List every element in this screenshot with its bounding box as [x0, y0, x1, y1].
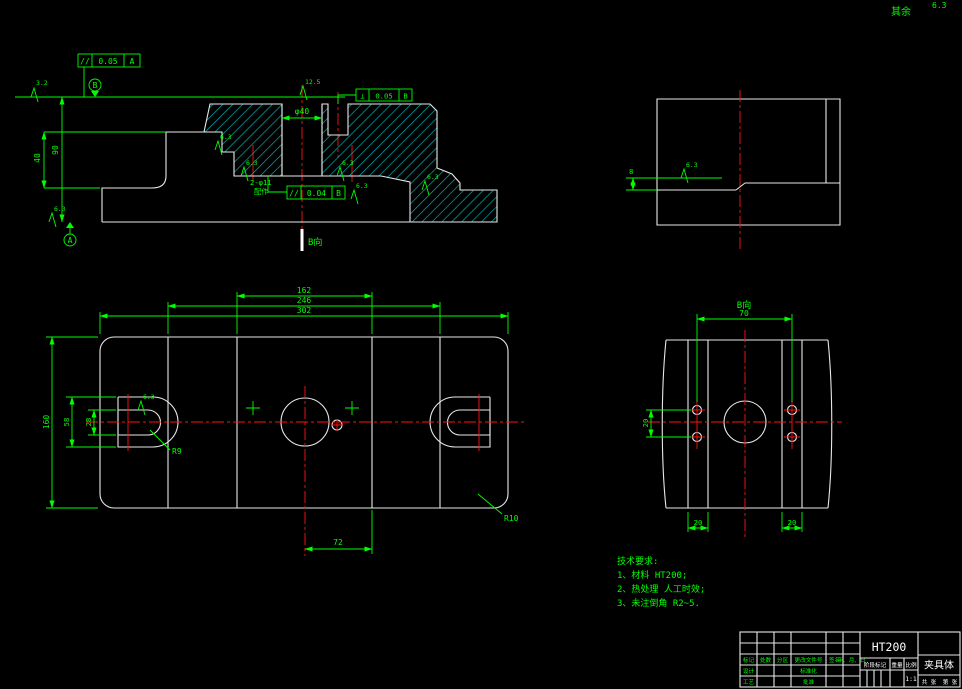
svg-text:6.3: 6.3 [246, 159, 258, 167]
svg-text:302: 302 [297, 306, 312, 315]
front-section-view: B A // 0.05 A ⊥ 0.05 B [15, 54, 497, 251]
side-outline [657, 99, 840, 225]
svg-text:A: A [68, 236, 73, 245]
side-extension [626, 178, 722, 190]
corner-radius-label: R10 [504, 514, 519, 523]
svg-text:0.04: 0.04 [307, 189, 326, 198]
slot-radius-label: R9 [172, 447, 182, 456]
b-direction-view: B向 70 20 20 20 [641, 299, 842, 537]
tech-item: 1、材料 HT200; [617, 569, 687, 581]
standardize-label: 标准化 [800, 667, 817, 675]
tech-item: 3、未注倒角 R2~5. [617, 597, 700, 609]
dim-step: 40 [33, 153, 42, 163]
svg-text:58: 58 [62, 418, 71, 427]
svg-text:6.3: 6.3 [342, 159, 354, 167]
right-slot-inner [448, 410, 491, 435]
technical-requirements: 技术要求: 1、材料 HT200; 2、热处理 人工时效; 3、未注倒角 R2~… [617, 555, 705, 609]
surplus-value: 6.3 [932, 1, 947, 10]
fcf-perp-b: ⊥ 0.05 B [356, 89, 412, 101]
sheet-no-label: 第 张 [943, 678, 958, 686]
stage-label: 阶段标记 [864, 661, 887, 669]
plan-centerlines [86, 386, 524, 556]
svg-text:0.05: 0.05 [375, 92, 392, 101]
sheets-label: 共 张 [922, 678, 937, 686]
left-slot-outer [118, 397, 178, 447]
svg-text:标记: 标记 [743, 656, 755, 664]
svg-text:28: 28 [84, 418, 93, 427]
svg-text:A: A [130, 57, 135, 66]
svg-text:6.3: 6.3 [356, 182, 368, 190]
dim-height: 90 [51, 145, 60, 155]
left-slot-inner [118, 410, 161, 435]
svg-text:70: 70 [739, 309, 749, 318]
scale-label: 比例 [905, 661, 917, 669]
svg-text:更改文件号: 更改文件号 [795, 656, 823, 664]
svg-text:20: 20 [694, 518, 703, 527]
svg-text:160: 160 [42, 415, 51, 430]
section-direction-marker: B向 [302, 229, 322, 251]
svg-text:6.3: 6.3 [686, 161, 698, 169]
approve-label: 批准 [803, 678, 815, 686]
bview-centerlines [648, 330, 842, 537]
plan-panel-lines [168, 337, 440, 508]
svg-text:162: 162 [297, 286, 312, 295]
svg-text:处数: 处数 [760, 656, 772, 664]
plan-dimensions: 162 246 302 160 58 28 72 R9 R10 6.3 [42, 286, 519, 554]
side-inner-lines [657, 99, 840, 190]
svg-text:⊥: ⊥ [360, 92, 365, 101]
tech-title: 技术要求: [617, 555, 658, 567]
svg-text:B: B [93, 81, 98, 90]
side-dim-step: 8 [629, 167, 633, 176]
svg-text:20: 20 [641, 419, 650, 428]
svg-text:20: 20 [788, 518, 797, 527]
svg-text:6.3: 6.3 [220, 133, 232, 141]
design-label: 设计 [743, 667, 755, 675]
process-label: 工艺 [743, 679, 755, 686]
left-wing-section [204, 104, 282, 176]
dim-bore: φ40 [295, 107, 310, 116]
svg-text:6.3: 6.3 [54, 205, 66, 213]
material-value: HT200 [872, 640, 907, 654]
svg-text:3.2: 3.2 [36, 79, 48, 87]
part-name: 夹具体 [924, 659, 954, 672]
svg-text:72: 72 [333, 538, 343, 547]
surplus-roughness-note: 其余 6.3 [891, 1, 962, 24]
svg-text:分区: 分区 [777, 656, 789, 664]
svg-text://: // [289, 189, 299, 198]
plan-outline [100, 337, 508, 508]
holes-label: 2-φ11 [250, 178, 272, 187]
fcf-parallel-a: // 0.05 A [78, 54, 140, 67]
plan-view: 162 246 302 160 58 28 72 R9 R10 6.3 [42, 286, 524, 556]
title-block: 标记 处数 分区 更改文件号 签名 年、月、日 设计 标准化 工艺 批准 HT2… [740, 632, 960, 687]
hole-center-marks [246, 401, 359, 415]
b-direction-label: B向 [308, 236, 322, 248]
bview-top-bottom [666, 340, 828, 508]
svg-text:12.5: 12.5 [305, 78, 321, 86]
side-view: 8 6.3 [626, 90, 840, 252]
surplus-label: 其余 [891, 5, 911, 18]
svg-text://: // [80, 57, 90, 66]
drawing-svg: 其余 6.3 B [0, 0, 962, 689]
svg-text:6.3: 6.3 [427, 173, 439, 181]
datum-b: B [89, 79, 101, 97]
plan-roughness-icon [138, 401, 145, 415]
fcf2-leader [338, 95, 356, 104]
svg-text:B: B [403, 92, 407, 101]
svg-text:0.05: 0.05 [98, 57, 117, 66]
revision-row-labels: 标记 处数 分区 更改文件号 签名 年、月、日 设计 标准化 工艺 批准 [743, 656, 866, 686]
tech-item: 2、热处理 人工时效; [617, 583, 705, 595]
scale-value: 1:1 [905, 675, 917, 683]
svg-text:配作: 配作 [254, 187, 268, 196]
fcf-parallel-b: // 0.04 B [287, 186, 345, 199]
svg-text:6.3: 6.3 [143, 393, 155, 401]
svg-text:年、月、日: 年、月、日 [838, 656, 866, 664]
svg-text:B: B [336, 189, 341, 198]
datum-a: A [64, 222, 76, 246]
side-roughness-icon [681, 169, 688, 183]
weight-label: 重量 [891, 661, 903, 669]
cad-drawing-canvas: 其余 6.3 B [0, 0, 962, 689]
svg-text:246: 246 [297, 296, 312, 305]
